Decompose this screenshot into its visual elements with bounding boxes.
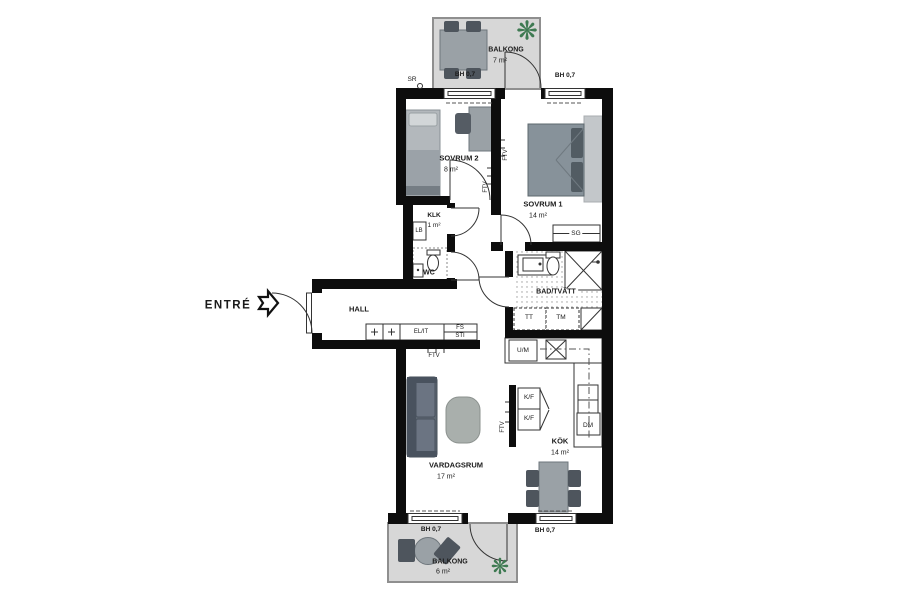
kok-area: 14 m² xyxy=(551,450,569,457)
balkong-bottom-label: BALKONG xyxy=(432,559,467,566)
balkong-bottom-area: 6 m² xyxy=(436,569,450,576)
plant-icon-bottom: ❋ xyxy=(491,554,509,580)
sti-label: STI xyxy=(455,333,464,339)
wc-label: WC xyxy=(423,270,435,277)
bad-tvatt-label: BAD/TVÄTT xyxy=(534,289,578,296)
hall-label: HALL xyxy=(349,305,369,313)
floor-plan: ENTRÉ HALL SOVRUM 2 8 m² SOVRUM 1 14 m² … xyxy=(0,0,900,600)
tt-label: TT xyxy=(525,315,533,322)
vardagsrum-label: VARDAGSRUM xyxy=(429,461,483,469)
bedroom2-furniture xyxy=(406,107,492,196)
klk-label: KLK xyxy=(427,213,440,220)
el-it-label: EL/IT xyxy=(414,329,428,335)
kf-top-label: K/F xyxy=(524,395,534,402)
sovrum1-label: SOVRUM 1 xyxy=(523,200,562,208)
lb-label: LB xyxy=(415,228,422,234)
entrance-arrow-icon xyxy=(259,291,278,315)
sovrum1-area: 14 m² xyxy=(529,213,547,220)
kok-label: KÖK xyxy=(552,437,569,445)
tm-label: TM xyxy=(556,315,565,322)
ftv-label-hall: FTV xyxy=(428,353,439,359)
bh-label-bottom-left: BH 0,7 xyxy=(421,527,441,534)
plant-icon-top: ❋ xyxy=(516,16,538,47)
balkong-top-area: 7 m² xyxy=(493,58,507,65)
sr-label: SR xyxy=(407,77,416,84)
sg-label: SG xyxy=(569,231,582,238)
sovrum2-area: 8 m² xyxy=(444,167,458,174)
ftv-label-sovrum2: FTV xyxy=(483,181,489,192)
bh-label-top-right: BH 0,7 xyxy=(555,73,575,80)
klk-area: 1 m² xyxy=(428,223,441,230)
entrance-label: ENTRÉ xyxy=(205,300,251,312)
sovrum2-label: SOVRUM 2 xyxy=(439,154,478,162)
ftv-label-kok: FTV xyxy=(500,421,506,432)
bedroom1-furniture xyxy=(528,116,602,242)
um-label: U/M xyxy=(517,348,529,355)
vardagsrum-area: 17 m² xyxy=(437,474,455,481)
bh-label-bottom-right: BH 0,7 xyxy=(535,528,555,535)
fs-label: FS xyxy=(456,325,464,331)
floor-plan-drawing xyxy=(0,0,900,600)
ftv-label-sovrum1: FTV xyxy=(503,149,509,160)
bh-label-top-left: BH 0,7 xyxy=(455,72,475,79)
balkong-top-label: BALKONG xyxy=(488,47,523,54)
kf-bottom-label: K/F xyxy=(524,416,534,423)
dm-label: DM xyxy=(583,423,593,430)
livingroom-furniture xyxy=(407,377,480,457)
